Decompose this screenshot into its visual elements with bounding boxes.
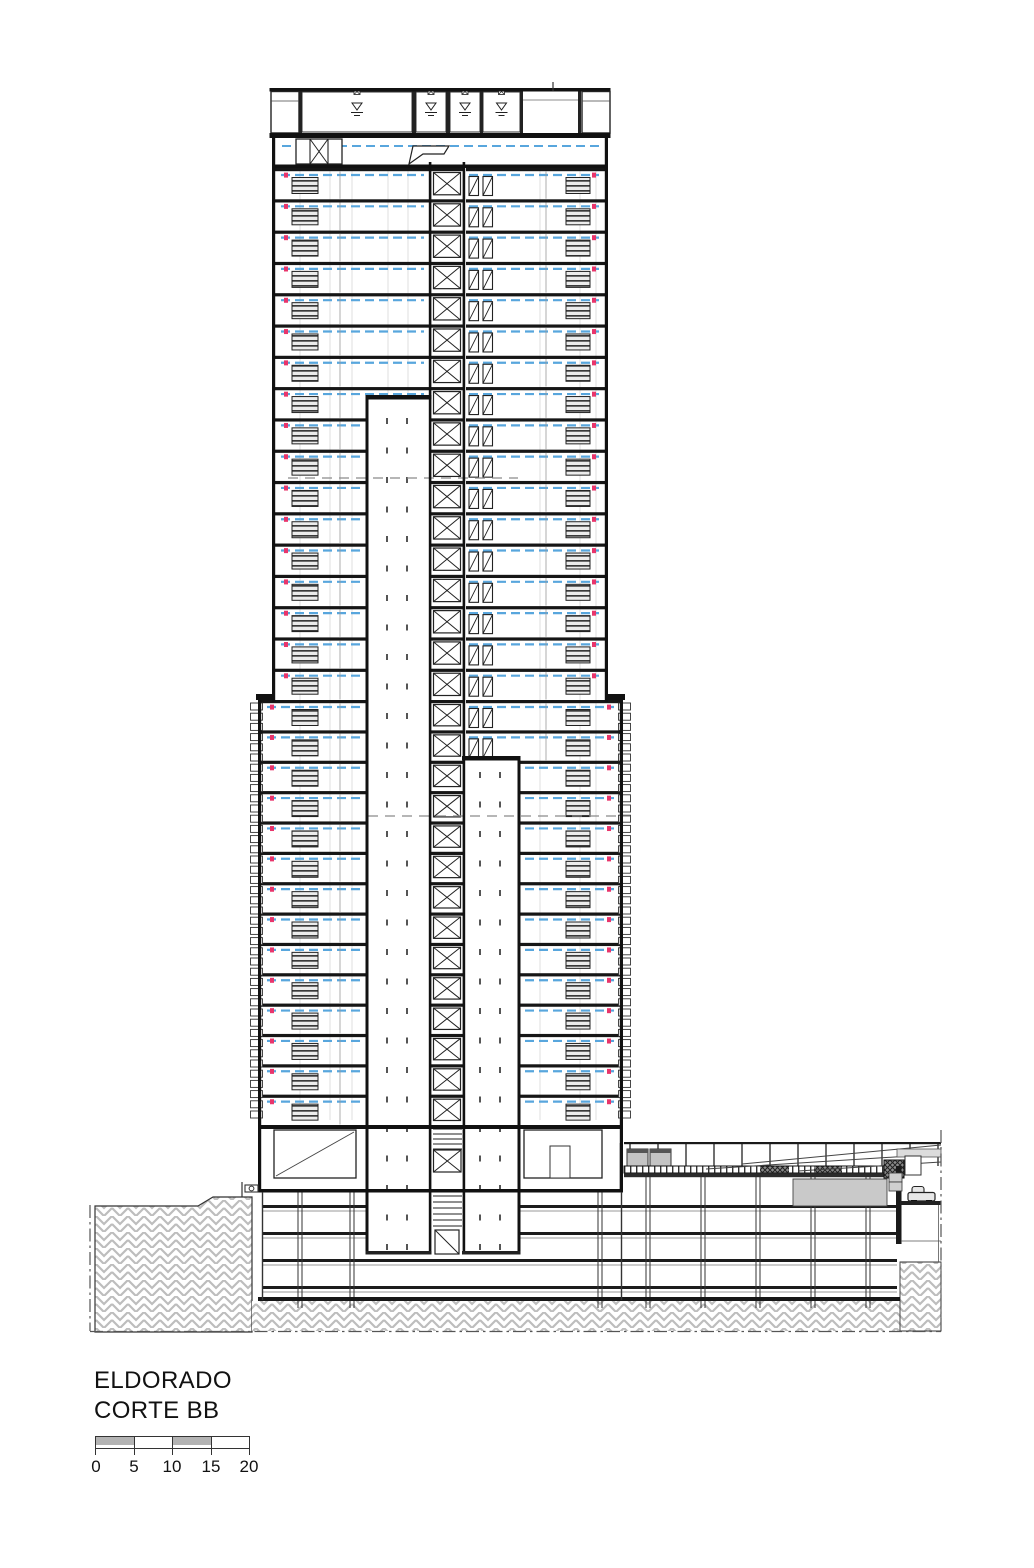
- stair-canopy: [409, 146, 449, 164]
- drawing-name: CORTE BB: [94, 1396, 232, 1426]
- title-block: ELDORADO CORTE BB: [94, 1366, 232, 1426]
- drawing-sheet: ELDORADO CORTE BB 0 5 10 15 20: [0, 0, 1034, 1568]
- void-wall: [518, 758, 521, 1254]
- project-name: ELDORADO: [94, 1366, 232, 1396]
- scale-bar: 0 5 10 15 20: [95, 1436, 251, 1477]
- plaza-railing-toprail: [624, 1142, 941, 1144]
- ground-right-block: [900, 1262, 941, 1331]
- basement-room: [793, 1179, 887, 1206]
- scale-tick-label: 0: [91, 1457, 100, 1477]
- section-drawing: [0, 0, 1034, 1568]
- elevator-shaft-wall-right: [463, 162, 466, 1254]
- scale-labels: 0 5 10 15 20: [95, 1457, 251, 1477]
- car-icon: [908, 1187, 935, 1203]
- ground-left-block: [95, 1197, 252, 1332]
- scale-segment: [173, 1437, 212, 1448]
- scale-segment: [96, 1437, 135, 1448]
- scale-segment: [135, 1437, 174, 1448]
- scale-tick-label: 5: [129, 1457, 138, 1477]
- lobby-level: [245, 1130, 602, 1192]
- ground-under-building: [252, 1301, 900, 1331]
- mechanical-floor: [272, 139, 608, 168]
- scale-tick-label: 20: [240, 1457, 259, 1477]
- scale-bar-segments: [95, 1436, 250, 1449]
- elevator-shaft-wall-left: [429, 162, 432, 1254]
- scale-tick-label: 15: [202, 1457, 221, 1477]
- scale-tick-label: 10: [163, 1457, 182, 1477]
- scale-segment: [212, 1437, 250, 1448]
- podium-plaza: [624, 1142, 941, 1262]
- scale-ticks: [95, 1449, 251, 1456]
